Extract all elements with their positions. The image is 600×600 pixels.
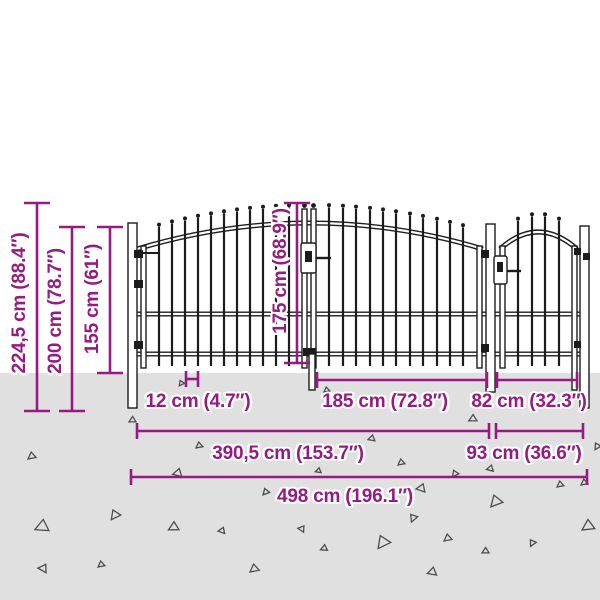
spear-finial (196, 214, 200, 218)
dimension-label-fence-height: 155 cm (61″) (82, 244, 104, 354)
spear-finial (183, 216, 187, 220)
spear-finial (248, 206, 252, 210)
hinge (481, 250, 489, 258)
dimension-label-bar-spacing: 12 cm (4.7″) (146, 391, 251, 413)
hinge (583, 253, 590, 260)
hinge (134, 341, 143, 349)
hinge (134, 280, 143, 288)
fence-rails (137, 223, 581, 354)
center-post (486, 224, 495, 392)
dimension-label-post-height: 200 cm (78.7″) (45, 248, 67, 374)
spear-finial (354, 205, 358, 209)
spear-finial (461, 223, 465, 227)
hinge (481, 344, 489, 352)
spear-finial (327, 203, 331, 207)
spear-finial (408, 211, 412, 215)
spear-finial (235, 207, 239, 211)
spear-finial (261, 205, 265, 209)
spear-finial (543, 212, 547, 216)
spear-finial (516, 217, 520, 221)
spear-finial (222, 209, 226, 213)
hinge (574, 341, 581, 348)
fence-dimension-diagram: 224,5 cm (88.4″) 200 cm (78.7″) 155 cm (… (0, 0, 600, 600)
hinge (574, 248, 581, 255)
drop-rod (309, 354, 315, 390)
spear-finial (421, 214, 425, 218)
spear-finial (341, 204, 345, 208)
spear-finial (557, 217, 561, 221)
dimension-label-left-gate-width: 185 cm (72.8″) (322, 391, 448, 413)
dimension-label-total-height: 224,5 cm (88.4″) (9, 232, 31, 373)
spear-finial (381, 207, 385, 211)
dimension-label-total-width: 498 cm (196.1″) (277, 486, 413, 508)
dimension-label-double-gate-width: 390,5 cm (153.7″) (212, 443, 363, 465)
spear-finial (448, 220, 452, 224)
dimension-label-right-gate-width: 82 cm (32.3″) (471, 391, 586, 413)
spear-finial (530, 212, 534, 216)
spear-finial (368, 206, 372, 210)
spear-finial (435, 217, 439, 221)
dimension-label-side-section-width: 93 cm (36.6″) (466, 443, 581, 465)
spear-finial (209, 211, 213, 215)
spear-finial (170, 219, 174, 223)
spear-finial (157, 223, 161, 227)
dimension-label-gate-height: 175 cm (68.9″) (270, 208, 292, 334)
spear-finial (394, 209, 398, 213)
hinge (134, 250, 143, 258)
